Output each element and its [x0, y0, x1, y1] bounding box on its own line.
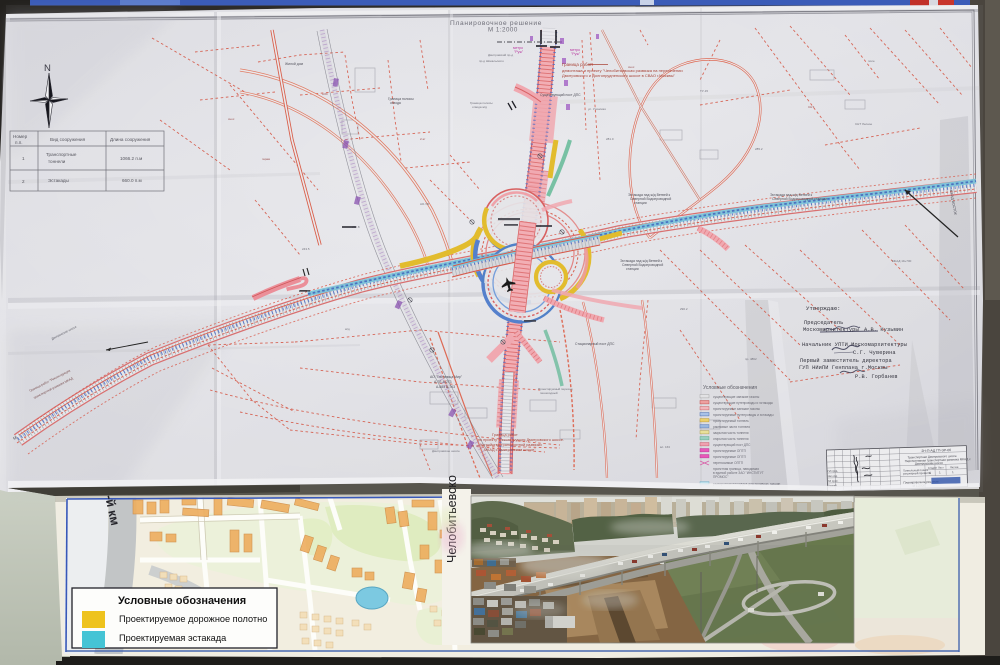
svg-text:П: П	[929, 471, 931, 475]
svg-text:Граница работ: Граница работ	[562, 62, 592, 67]
svg-text:рамповые части тоннеля: рамповые части тоннеля	[713, 425, 750, 429]
svg-text:АЗС: АЗС	[322, 92, 329, 96]
svg-text:Транспортные: Транспортные	[46, 152, 77, 157]
svg-text:ТУ-15: ТУ-15	[700, 89, 708, 93]
svg-text:Дмитровский пр-д: Дмитровский пр-д	[488, 53, 513, 57]
svg-text:А-683 А-763: А-683 А-763	[436, 385, 455, 389]
svg-text:ГУП НИиПИ Генплана г.Москвы: ГУП НИиПИ Генплана г.Москвы	[799, 365, 888, 371]
svg-text:Нач.отд.: Нач.отд.	[828, 474, 838, 478]
svg-text:СНТ: СНТ	[808, 105, 814, 109]
svg-text:проектируемые заезжие газоны: проектируемые заезжие газоны	[713, 407, 761, 411]
svg-text:отвода: отвода	[390, 101, 401, 105]
svg-text:ПРОМОС": ПРОМОС"	[713, 475, 728, 479]
svg-text:А-7Б А-273: А-7Б А-273	[434, 380, 452, 384]
svg-text:Начальник УПТИ Москомархитекту: Начальник УПТИ Москомархитектуры	[802, 342, 907, 348]
svg-text:285.2: 285.2	[755, 147, 763, 151]
svg-text:290.2: 290.2	[680, 307, 688, 311]
svg-text:Граница работ: Граница работ	[492, 433, 518, 437]
svg-text:АО "Гостиница Мир": АО "Гостиница Мир"	[430, 375, 463, 379]
svg-text:Р.В. Горбанев: Р.В. Горбанев	[855, 374, 898, 380]
svg-text:вл. 163: вл. 163	[660, 445, 670, 449]
svg-text:закрытая часть тоннеля: закрытая часть тоннеля	[713, 431, 749, 435]
svg-text:2: 2	[22, 179, 25, 184]
svg-text:проектируемые ОПТП: проектируемые ОПТП	[713, 449, 747, 453]
svg-text:А.В. Кузьмин: А.В. Кузьмин	[864, 327, 903, 333]
svg-text:Устройство транспортной развяз: Устройство транспортной развязки	[480, 443, 542, 447]
svg-text:1: 1	[22, 156, 25, 161]
svg-text:пр-д Шокальского: пр-д Шокальского	[479, 59, 504, 63]
svg-text:ГИ прое.: ГИ прое.	[828, 479, 839, 483]
svg-text:МКАД 19+700: МКАД 19+700	[892, 259, 912, 263]
svg-text:N: N	[44, 63, 51, 74]
svg-text:М 1:2000: М 1:2000	[488, 27, 518, 34]
svg-text:Стационарный пост ДПС: Стационарный пост ДПС	[575, 342, 615, 346]
svg-text:Вид сооружения: Вид сооружения	[50, 137, 86, 142]
svg-text:существующий пост ДПС: существующий пост ДПС	[713, 443, 751, 447]
svg-text:Условные обозначения: Условные обозначения	[703, 385, 757, 391]
svg-text:Первый заместитель директора: Первый заместитель директора	[800, 357, 892, 364]
svg-text:"Руж": "Руж"	[514, 50, 524, 54]
svg-text:МКАД с Дмитровским шоссе": МКАД с Дмитровским шоссе"	[484, 448, 536, 452]
svg-text:существующие заезжие газоны: существующие заезжие газоны	[713, 395, 760, 399]
svg-text:Длина сооружения: Длина сооружения	[110, 137, 151, 142]
svg-text:Северной Водопроводной станции: Северной Водопроводной станции	[772, 197, 827, 201]
svg-text:станции: станции	[634, 201, 647, 205]
svg-text:п.п.: п.п.	[15, 140, 23, 145]
svg-text:С.Г. Чуверина: С.Г. Чуверина	[853, 350, 896, 356]
svg-text:Жилой дом: Жилой дом	[285, 62, 304, 66]
svg-text:Дмитровское шоссе: Дмитровское шоссе	[432, 449, 460, 453]
svg-text:тоннели: тоннели	[48, 159, 66, 164]
svg-text:по проекту "Реконструкция Дмит: по проекту "Реконструкция Дмитровского ш…	[478, 438, 564, 442]
svg-text:2-эт: 2-эт	[420, 137, 426, 141]
svg-text:пр. 4862: пр. 4862	[745, 357, 757, 361]
svg-text:ГИ пред.: ГИ пред.	[827, 469, 838, 473]
svg-text:проектируемый тоннель: проектируемый тоннель	[713, 419, 749, 423]
svg-text:ж/д: ж/д	[345, 327, 350, 331]
svg-text:переносимые ОПТП: переносимые ОПТП	[713, 461, 744, 465]
svg-text:Стадия: Стадия	[928, 466, 938, 470]
svg-text:"Руж": "Руж"	[571, 52, 581, 56]
svg-text:существующие путепроводы и эст: существующие путепроводы и эстакады	[713, 401, 774, 405]
svg-text:открытая часть тоннеля: открытая часть тоннеля	[713, 437, 749, 441]
svg-text:660.0 п.м: 660.0 п.м	[122, 178, 142, 183]
svg-text:СНТ Лесное: СНТ Лесное	[855, 122, 872, 126]
svg-text:Номер: Номер	[13, 134, 28, 139]
svg-text:Дмитровского и Долгопрудненско: Дмитровского и Долгопрудненского шоссе в…	[562, 73, 676, 78]
svg-text:1066.2 п.м: 1066.2 п.м	[120, 156, 142, 161]
svg-text:Проектируемое дорожное полотно: Проектируемое дорожное полотно	[119, 614, 267, 624]
svg-text:проектируемые ОПТП: проектируемые ОПТП	[713, 455, 747, 459]
svg-text:Условные обозначения: Условные обозначения	[118, 595, 246, 607]
svg-text:снос: снос	[228, 117, 235, 121]
svg-text:поле: поле	[868, 59, 875, 63]
svg-text:пешеходный: пешеходный	[540, 391, 558, 395]
svg-text:станции: станции	[626, 267, 639, 271]
svg-text:243.5: 243.5	[302, 247, 310, 251]
svg-text:Проектируемая эстакада: Проектируемая эстакада	[119, 633, 227, 643]
svg-text:Утверждаю:: Утверждаю:	[806, 305, 841, 312]
svg-text:АО-УБ: АО-УБ	[420, 202, 429, 206]
svg-text:проектируемые путепроводы и эс: проектируемые путепроводы и эстакады	[713, 413, 774, 417]
svg-text:281.0: 281.0	[606, 137, 614, 141]
svg-text:Лист: Лист	[938, 465, 945, 469]
svg-text:Председатель: Председатель	[804, 320, 843, 326]
svg-text:гараж: гараж	[262, 157, 270, 161]
svg-text:Листов: Листов	[950, 465, 959, 469]
svg-text:отвода ж/д: отвода ж/д	[472, 105, 487, 109]
svg-text:ул. Учинская: ул. Учинская	[588, 107, 606, 111]
svg-text:Существующий пост ДПС: Существующий пост ДПС	[540, 93, 581, 97]
svg-text:Эстакады: Эстакады	[48, 178, 69, 183]
